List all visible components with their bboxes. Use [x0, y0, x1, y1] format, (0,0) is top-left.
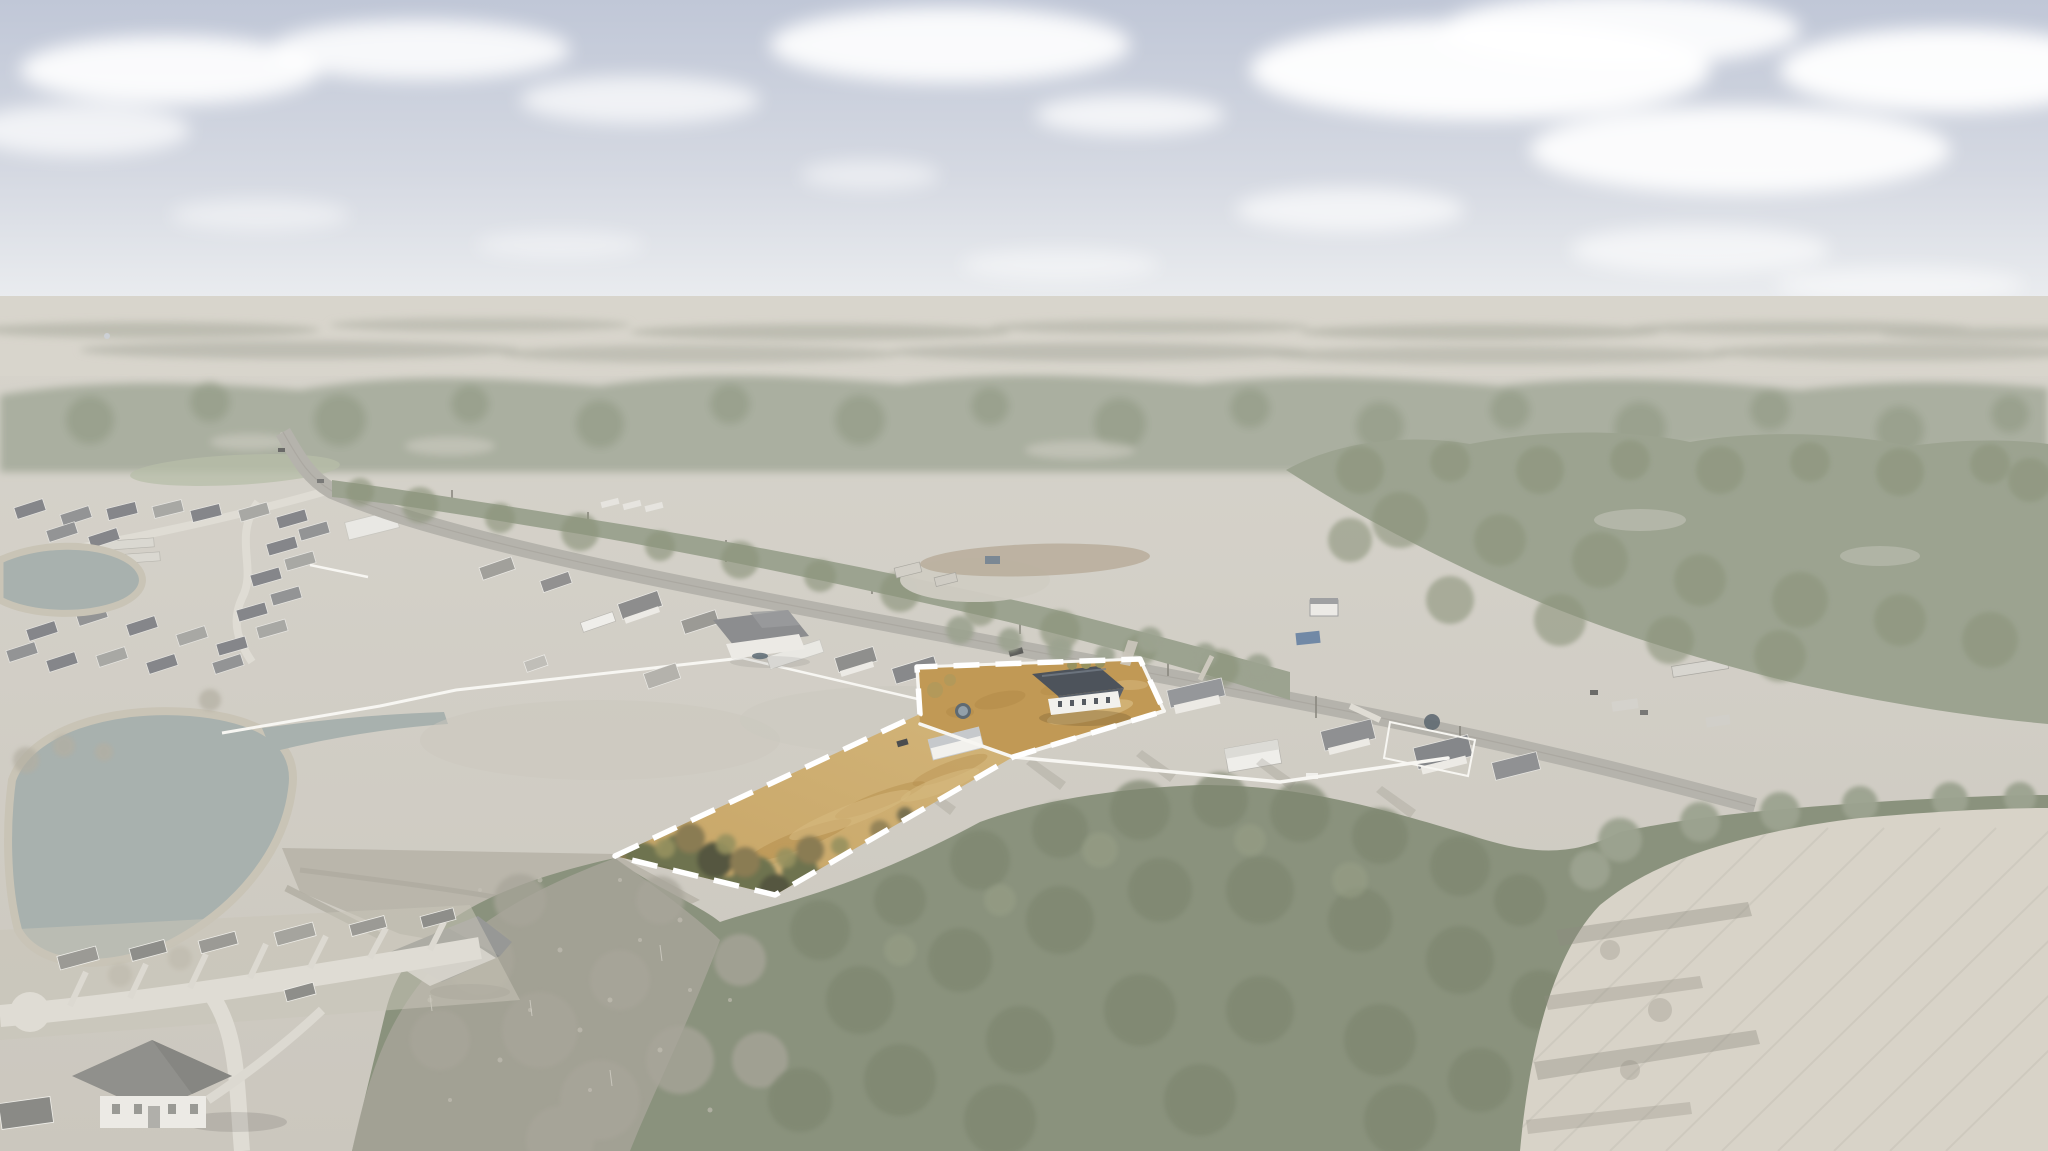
aerial-photo: Oblique aerial drone photograph of a rur…	[0, 0, 2048, 1151]
upper-pond	[0, 546, 142, 613]
blue-carport	[1295, 631, 1320, 645]
sky	[0, 0, 2048, 318]
backyard-pool	[752, 653, 768, 659]
water-tower	[104, 333, 110, 339]
cul-de-sac	[10, 992, 50, 1032]
aerial-photo-canvas: Oblique aerial drone photograph of a rur…	[0, 0, 2048, 1151]
horizon-haze	[0, 296, 2048, 376]
round-pool	[1424, 714, 1440, 730]
